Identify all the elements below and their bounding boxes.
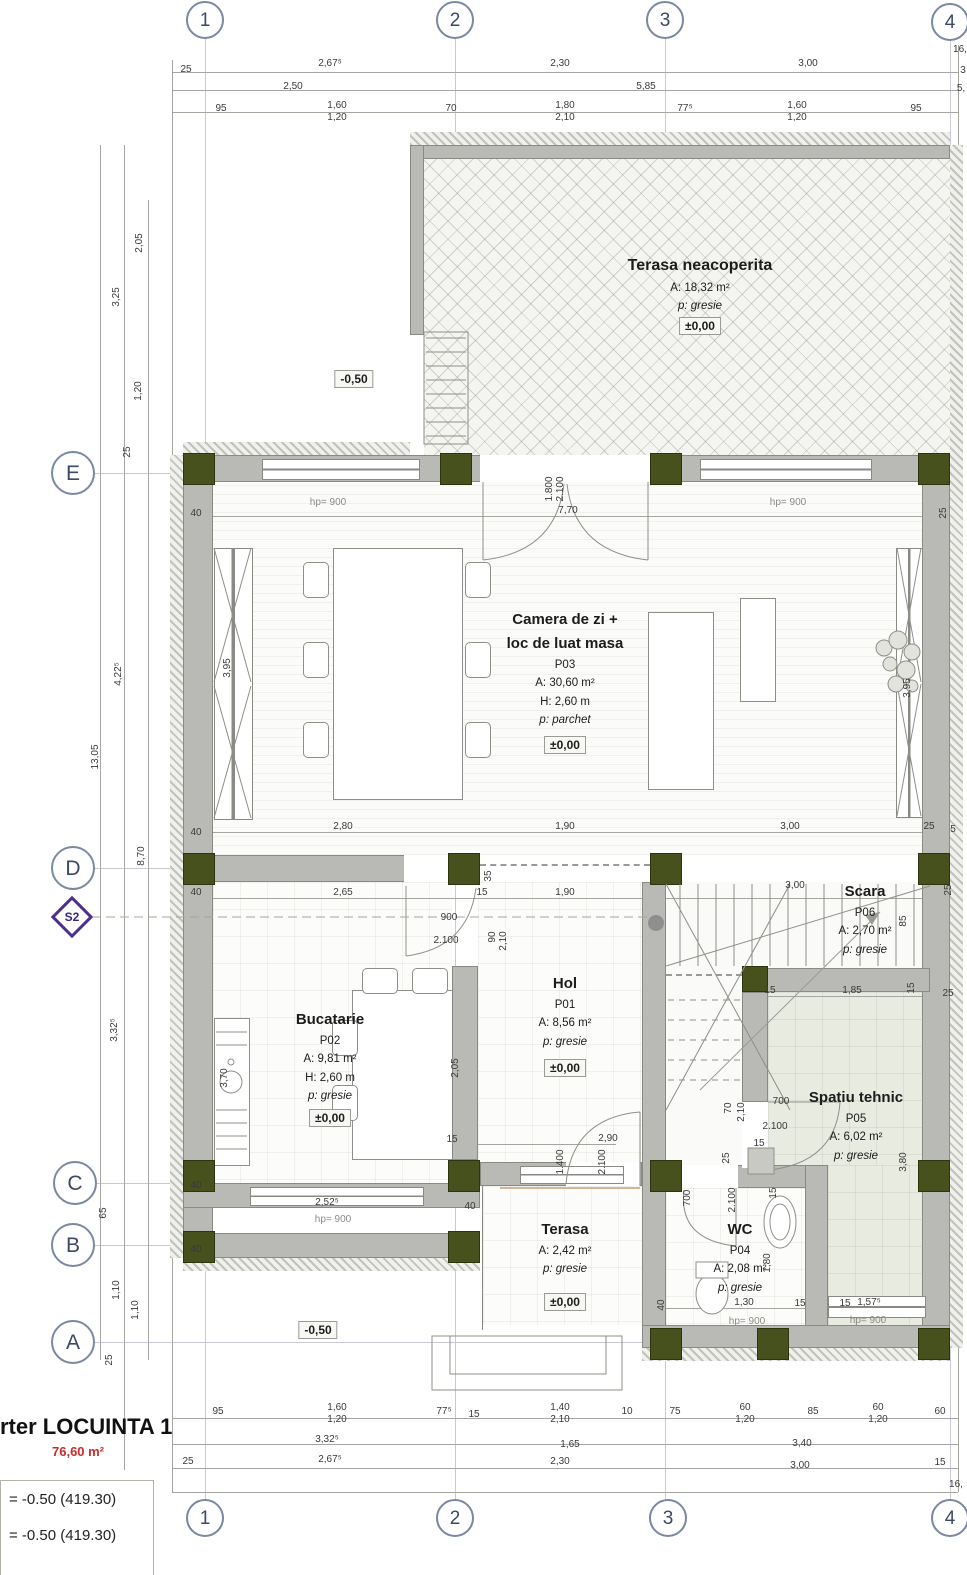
column [918,1160,950,1192]
axis-circle-B: B [51,1223,95,1267]
dim-label: 40 [190,1181,201,1191]
dim-label: 25 [105,1354,115,1365]
dim-label: 3,25 [112,287,122,306]
dim-label: 15 [794,1299,805,1309]
dim-label: 3 [960,66,966,76]
dim-label: 1,90 [555,822,574,832]
dim-label: 7,70 [558,506,577,516]
dim-label: 3,40 [792,1439,811,1449]
chair [362,968,398,994]
dim-label: 1,80 [555,101,574,111]
dim-label: 2,52⁵ [315,1198,339,1208]
column [918,1328,950,1360]
dim-label: 700 [773,1097,790,1107]
floor-sub-scara [666,968,742,1165]
wall-finish-strip [950,145,963,1348]
plan-title: rter LOCUINTA 1 [0,1414,172,1440]
wall-right [922,455,950,1345]
level-legend-line: = -0.50 (419.30) [9,1491,116,1508]
dim-label: 25 [722,1152,732,1163]
dim-label: 15 [446,1135,457,1145]
dim-label: 3,00 [785,881,804,891]
dim-label: 3,95 [223,658,233,677]
dim-label: 2,10 [555,113,574,123]
wall-finish-strip [170,455,183,1258]
level-legend-line: = -0.50 (419.30) [9,1527,116,1544]
axis-circle-D: D [51,846,95,890]
dim-label: 25 [923,822,934,832]
wall-finish-strip [183,1258,480,1271]
dim-label: 1,40 [550,1403,569,1413]
dim-label: 2,90 [598,1134,617,1144]
axis-circle-A: A [51,1320,95,1364]
dim-label: 1,10 [131,1300,141,1319]
dim-label: 16, [953,45,967,55]
dim-label: 2,30 [550,1457,569,1467]
dim-label: 3,32⁵ [110,1018,120,1042]
dim-label: 1,85 [842,986,861,996]
dim-line [148,200,149,1360]
level-badge: ±0,00 [544,1293,586,1311]
axis-circle-3-bottom: 3 [649,1499,687,1537]
dim-label: 8,70 [137,846,147,865]
dim-label: 1.400 [556,1149,566,1174]
dim-line [213,516,922,517]
column [448,1231,480,1263]
chair [303,722,329,758]
dim-label: 35 [484,870,494,881]
dim-label: 900 [441,913,458,923]
dim-label: 15 [934,1458,945,1468]
chair [465,642,491,678]
dim-label: 60 [872,1403,883,1413]
dim-label: 2,10 [737,1102,747,1121]
column [918,453,950,485]
dim-label: 1,20 [787,113,806,123]
dim-label: 15 [468,1410,479,1420]
dim-label: 85 [899,915,909,926]
dim-line [124,145,125,1470]
dim-label: 40 [657,1299,667,1310]
dim-label: 15 [753,1139,764,1149]
dim-label: 1,20 [735,1415,754,1425]
wall-wc-spatiu [805,1165,828,1330]
dim-label: 10 [621,1407,632,1417]
dim-label: 1,20 [868,1415,887,1425]
column [183,853,215,885]
dim-label: 2,65 [333,888,352,898]
dim-label: 700 [683,1190,693,1207]
dim-label: 40 [190,828,201,838]
room-label-camera-de-zi: Camera de zi + loc de luat masa P03 A: 3… [507,608,624,730]
dim-label: 70 [445,104,456,114]
axis-circle-1-top: 1 [186,1,224,39]
window-E-right [700,459,872,480]
dim-label: 60 [739,1403,750,1413]
dining-table [333,548,463,800]
dim-label: 65 [99,1207,109,1218]
dim-line [172,72,958,73]
axis-circle-1-bottom: 1 [186,1499,224,1537]
room-label-wc: WC P04 A: 2,08 m² p: gresie [713,1218,766,1297]
wall-finish-strip [642,1348,950,1361]
dim-label: 70 [724,1102,734,1113]
dim-label: 5,85 [636,82,655,92]
window-E-left [262,459,420,480]
dim-label: 75 [669,1407,680,1417]
dim-label: hp= 900 [729,1317,765,1327]
dim-label: 2,10 [499,931,509,950]
level-badge: ±0,00 [544,1059,586,1077]
dim-label: 85 [807,1407,818,1417]
dim-label: 25 [944,884,954,895]
wall-terasa-top [410,145,950,159]
column [183,453,215,485]
dim-label: 40 [190,1245,201,1255]
level-badge: ±0,00 [544,736,586,754]
dim-label: 3,32⁵ [315,1435,339,1445]
dim-label: 15 [769,1187,779,1198]
room-label-spatiu-tehnic: Spatiu tehnic P05 A: 6,02 m² p: gresie [809,1086,903,1165]
column [757,1328,789,1360]
chair [465,562,491,598]
column [650,853,682,885]
dim-label: 25 [942,989,953,999]
door-opening-wc [682,1165,738,1188]
dim-label: 1,20 [327,113,346,123]
level-legend-box: = -0.50 (419.30) = -0.50 (419.30) [0,1480,154,1575]
room-label-bucatarie: Bucatarie P02 A: 9,81 m² H: 2,60 m p: gr… [296,1008,364,1106]
dim-label: 2,67⁵ [318,1455,342,1465]
dashed-stair-edge [666,974,742,976]
column [650,1328,682,1360]
dim-label: 4,22⁵ [114,662,124,686]
dim-label: 5 [950,825,956,835]
dim-label: 15 [476,888,487,898]
room-label-scara: Scara P06 A: 2,70 m² p: gresie [838,880,891,959]
dashed-opening-D [480,864,650,866]
axis-circle-2-top: 2 [436,1,474,39]
column [448,853,480,885]
dim-label: 1,10 [112,1280,122,1299]
dim-label: 16, [949,1480,963,1490]
column [918,853,950,885]
level-badge: ±0,00 [309,1109,351,1127]
dim-label: 13,05 [91,744,101,769]
dim-label: 95 [215,104,226,114]
dim-label: 2,50 [283,82,302,92]
plan-total-area: 76,60 m² [52,1444,104,1459]
dim-label: 77⁵ [436,1407,451,1417]
dim-label: 2,10 [550,1415,569,1425]
chair [303,562,329,598]
room-label-hol: Hol P01 A: 8,56 m² p: gresie [538,972,591,1051]
dim-label: 1.800 [545,476,555,501]
sofa [648,612,714,790]
room-label-terasa-jos: Terasa A: 2,42 m² p: gresie [538,1218,591,1279]
dim-label: hp= 900 [850,1316,886,1326]
dim-label: 3,00 [780,822,799,832]
level-badge-minus: -0,50 [298,1321,337,1339]
dim-label: 1,60 [787,101,806,111]
wall-hol-scara [642,882,666,1330]
dim-label: 40 [190,888,201,898]
wall-finish-strip [183,442,410,455]
dim-label: 3,95 [903,678,913,697]
column [448,1160,480,1192]
chair [465,722,491,758]
dim-label: 2,80 [333,822,352,832]
dim-label: 2,05 [451,1058,461,1077]
chair [303,642,329,678]
dim-label: 60 [934,1407,945,1417]
chair [412,968,448,994]
dim-label: 3,00 [790,1461,809,1471]
dim-line [172,1492,958,1493]
dim-label: 2.100 [728,1187,738,1212]
dim-line [213,832,953,833]
axis-line-A [95,1342,648,1343]
wall-spatiu-left [742,992,768,1102]
kitchen-counter [214,1018,250,1166]
room-label-terasa-neacoperita: Terasa neacoperita A: 18,32 m² p: gresie [628,253,773,315]
dim-label: 3,00 [798,59,817,69]
dim-label: hp= 900 [315,1215,351,1225]
dim-label: 25 [182,1457,193,1467]
dim-label: 2.100 [433,936,458,946]
window-hol-terasa [520,1166,624,1184]
dim-label: 1,20 [327,1415,346,1425]
dim-label: 25 [180,65,191,75]
dim-label: 2.100 [762,1122,787,1132]
dim-label: 15 [907,982,917,993]
dim-label: 95 [910,104,921,114]
dim-label: 1,60 [327,1403,346,1413]
axis-circle-3-top: 3 [646,1,684,39]
side-table [740,598,776,702]
dim-label: 1,20 [134,381,144,400]
dim-label: 40 [464,1202,475,1212]
level-badge-minus: -0,50 [334,370,373,388]
terasa-steps-outline [432,1336,622,1390]
axis-circle-C: C [53,1161,97,1205]
dim-label: 2,05 [135,233,145,252]
dim-label: 77⁵ [677,104,692,114]
wall-B [183,1233,480,1258]
axis-circle-4-bottom: 4 [931,1499,967,1537]
dim-label: 5, [957,84,965,94]
axis-circle-E: E [51,451,95,495]
dim-label: 2,67⁵ [318,59,342,69]
axis-circle-4-top: 4 [931,3,967,41]
dim-label: 15 [839,1299,850,1309]
dim-label: 3,70 [220,1068,230,1087]
dim-line [172,1468,958,1469]
dim-label: hp= 900 [770,498,806,508]
window-left-wall [214,548,253,820]
column [440,453,472,485]
column [650,453,682,485]
dim-label: 90 [488,931,498,942]
dim-label: 15 [764,986,775,996]
axis-circle-2-bottom: 2 [436,1499,474,1537]
dim-label: 1,60 [327,101,346,111]
dim-label: hp= 900 [310,498,346,508]
dim-label: 25 [939,507,949,518]
dim-label: 2,30 [550,59,569,69]
dim-label: 2.100 [598,1149,608,1174]
dim-label: 1,30 [734,1298,753,1308]
dim-label: 40 [190,509,201,519]
wall-terasa-left [410,145,424,335]
column [650,1160,682,1192]
dim-label: 1,90 [555,888,574,898]
dim-label: 95 [212,1407,223,1417]
dim-label: 1,57⁵ [857,1298,881,1308]
section-marker-S2: S2 [51,896,93,938]
wall-terasa-edge [482,1186,483,1330]
dim-label: 25 [123,446,133,457]
dim-label: 2.100 [556,476,566,501]
floor-plan-canvas: 1 2 3 4 1 2 3 4 E D C B A S2 Terasa neac… [0,0,967,1575]
dim-line [456,1144,616,1145]
wall-finish-strip [410,132,950,145]
wall-bottom-right [642,1325,950,1348]
dim-label: 1,65 [560,1440,579,1450]
level-badge: ±0,00 [679,317,721,335]
